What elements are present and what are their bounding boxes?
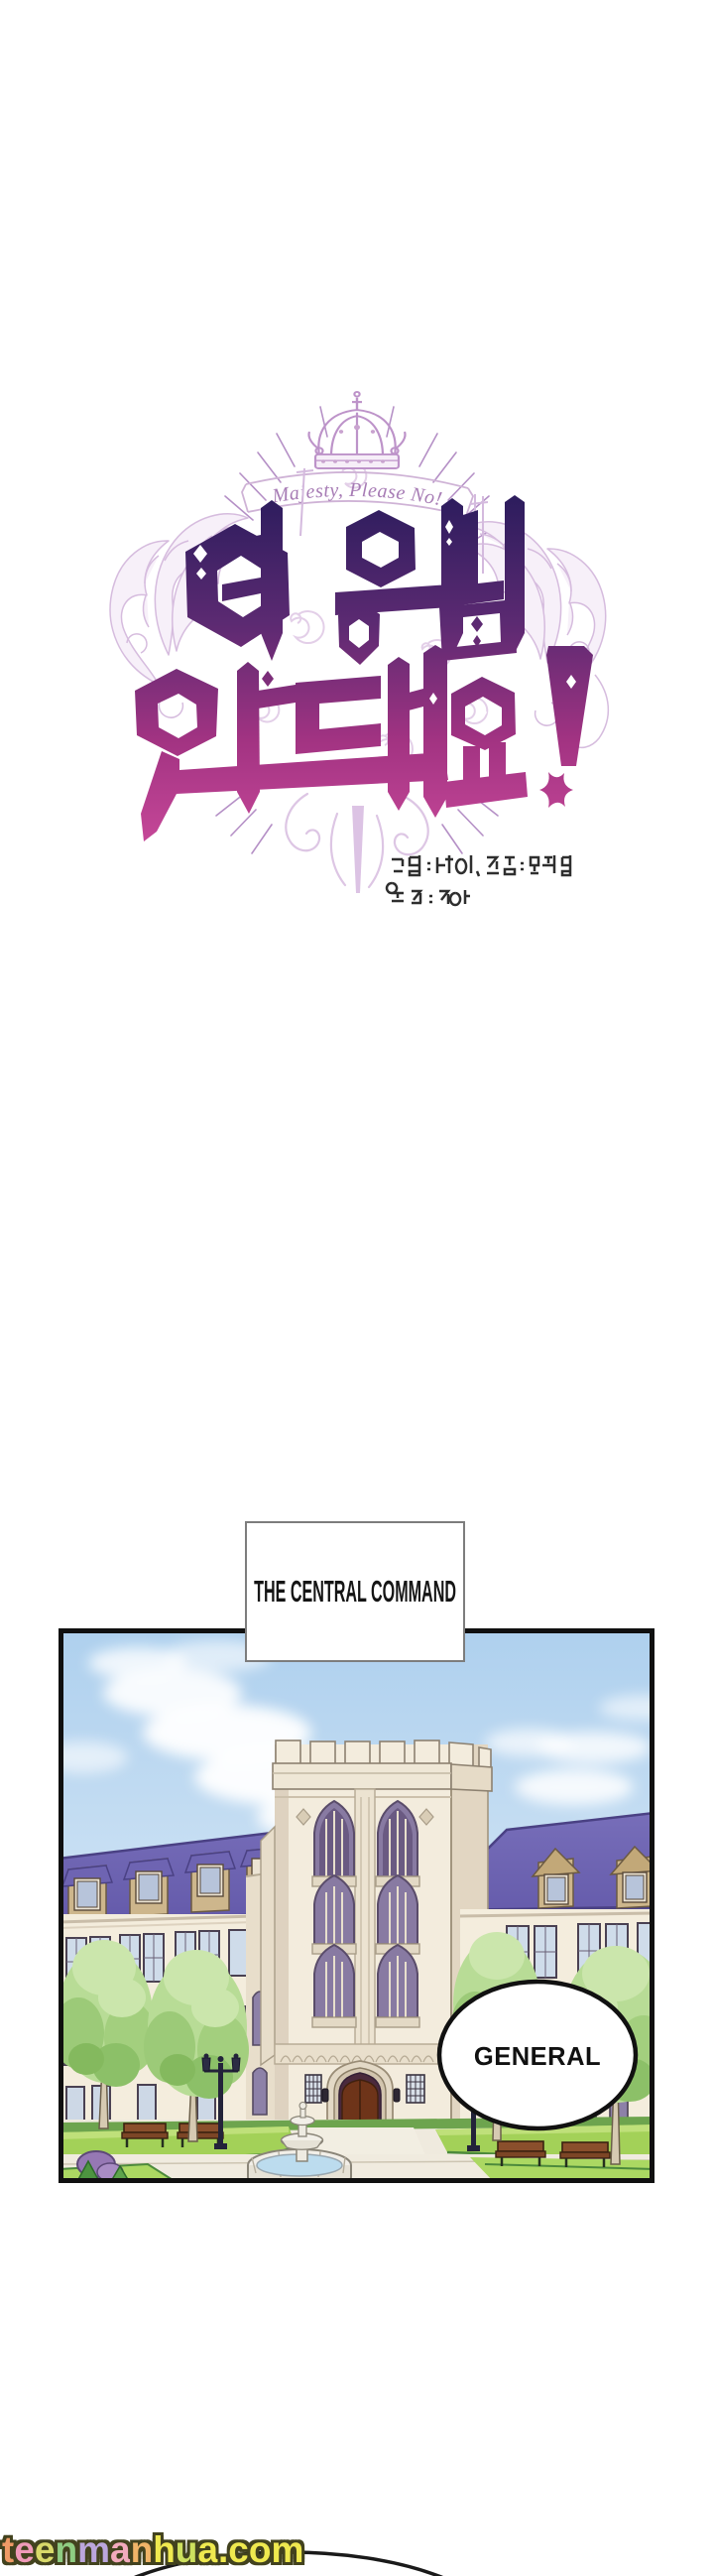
svg-text:GENERAL: GENERAL — [474, 2043, 601, 2071]
svg-text:Majesty, Please No!: Majesty, Please No! — [270, 479, 444, 510]
